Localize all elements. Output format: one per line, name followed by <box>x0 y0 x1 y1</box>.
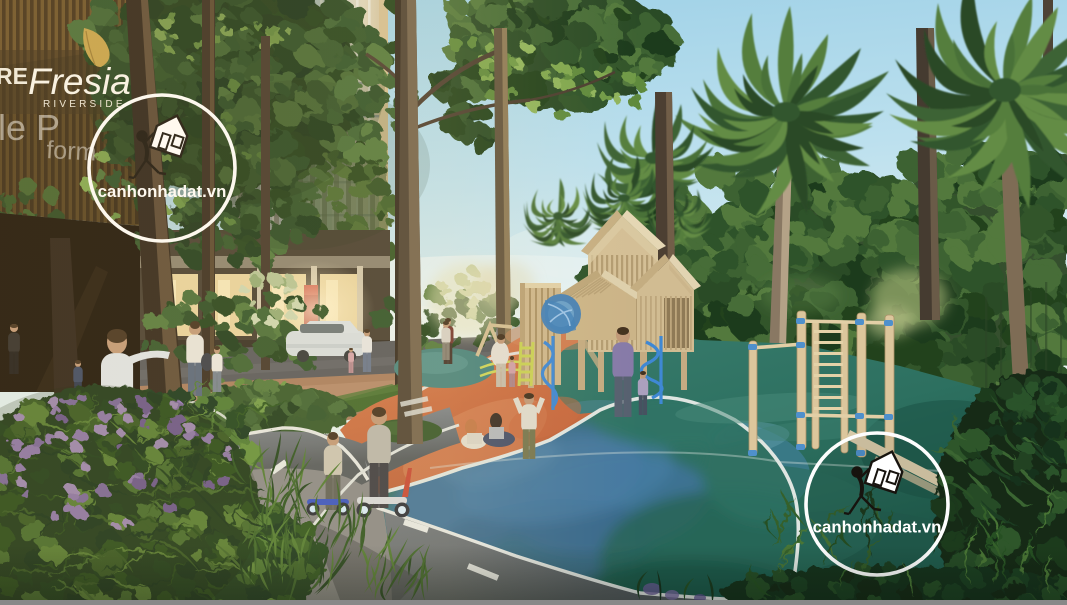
svg-text:canhonhadat.vn: canhonhadat.vn <box>813 517 942 536</box>
